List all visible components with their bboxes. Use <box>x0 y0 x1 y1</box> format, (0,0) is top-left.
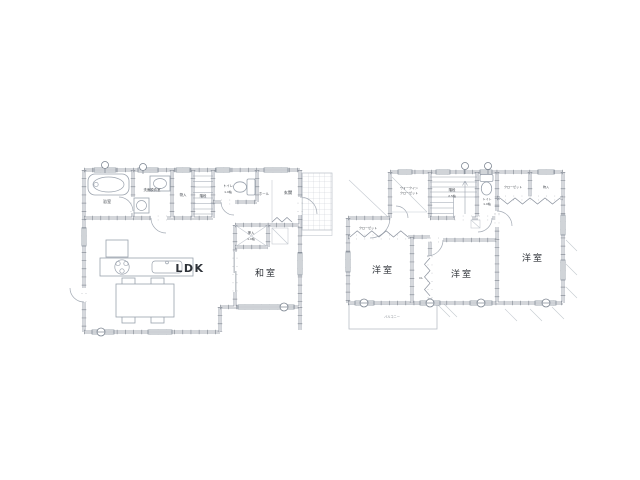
room-label-bedroom-middle: 洋室 <box>451 268 473 280</box>
kitchen-door-arc <box>70 288 84 302</box>
floor-plan-drawing: LDK 和室 浴室 洗面脱衣室 物入 階段 トイレ 1.0帖 ホール 玄関 押入… <box>0 0 640 480</box>
room-label-stairs-2f: 階段 <box>449 187 456 192</box>
refrigerator <box>106 240 128 257</box>
room-label-hall: ホール <box>259 191 270 196</box>
room-size-toilet-1f: 1.0帖 <box>224 189 232 194</box>
label-storage-top: 物入 <box>543 184 549 189</box>
room-label-oshiire: 押入 <box>248 230 255 235</box>
dining-table <box>116 278 174 323</box>
hall-storage-box <box>471 220 480 228</box>
floor2-door-gaps <box>350 196 560 298</box>
label-closet-middle: CL <box>419 276 423 280</box>
room-label-bedroom-left: 洋室 <box>372 264 394 276</box>
toilet-1f-fixture <box>234 179 256 195</box>
balcony-edge-marks <box>437 304 457 317</box>
oshiire-cross <box>235 225 268 247</box>
room-label-washitsu: 和室 <box>255 267 277 279</box>
room-label-storage: 物入 <box>180 192 187 197</box>
entrance-porch-tiles <box>302 173 332 230</box>
room-label-toilet-1f: トイレ <box>223 184 234 188</box>
room-label-washroom: 洗面脱衣室 <box>144 187 162 192</box>
room-label-ldk: LDK <box>175 262 204 275</box>
room-label-stairs-1f: 階段 <box>200 193 207 198</box>
floorplan-canvas: LDK 和室 浴室 洗面脱衣室 物入 階段 トイレ 1.0帖 ホール 玄関 押入… <box>0 0 640 480</box>
toilet-2f-fixture <box>480 175 493 196</box>
room-label-toilet-2f: トイレ <box>482 197 491 201</box>
room-size-stairs-2f: 2.5帖 <box>448 193 456 198</box>
label-balcony: バルコニー <box>384 315 400 319</box>
porch-step <box>302 230 332 236</box>
floor2-plan: 洋室 洋室 洋室 ウォークイン クローゼット 階段 2.5帖 トイレ 1.0帖 … <box>346 163 577 330</box>
floor1-plan: LDK 和室 浴室 洗面脱衣室 物入 階段 トイレ 1.0帖 ホール 玄関 押入… <box>70 162 332 337</box>
label-closet-top: クローゼット <box>504 184 522 189</box>
room-label-bath: 浴室 <box>103 198 111 205</box>
label-closet-left: クローゼット <box>359 225 377 230</box>
bathtub <box>88 174 129 195</box>
room-size-toilet-2f: 1.0帖 <box>483 201 491 206</box>
eave-hatch-marks <box>505 240 577 321</box>
room-size-oshiire: 1.0帖 <box>247 236 255 241</box>
room-label-entrance: 玄関 <box>284 189 292 196</box>
room-label-wic-line1: ウォークイン <box>400 185 418 190</box>
closet-folding-doors <box>350 198 560 296</box>
shoe-closet-door <box>272 218 292 223</box>
tokonoma <box>272 228 288 244</box>
room-label-wic-line2: クローゼット <box>400 190 418 195</box>
washing-machine <box>134 198 149 213</box>
roof-line <box>349 180 389 218</box>
room-label-bedroom-right: 洋室 <box>522 252 544 264</box>
